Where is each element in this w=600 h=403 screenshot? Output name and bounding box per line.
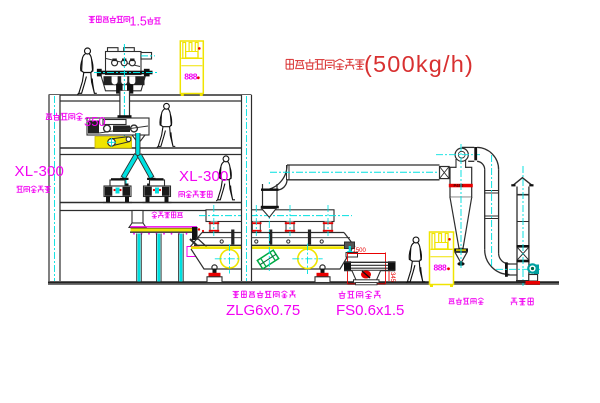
svg-text:1.5: 1.5	[130, 15, 147, 29]
svg-text:350: 350	[84, 114, 106, 129]
svg-text:1500: 1500	[353, 248, 367, 254]
svg-text:XL-300: XL-300	[15, 163, 65, 180]
svg-text:XL-300: XL-300	[179, 168, 229, 185]
svg-text:(500kg/h): (500kg/h)	[364, 51, 474, 77]
svg-text:888: 888	[434, 262, 447, 272]
svg-text:345: 345	[389, 272, 395, 283]
svg-text:P450: P450	[454, 183, 464, 188]
svg-text:ZLG6x0.75: ZLG6x0.75	[226, 302, 300, 319]
svg-text:888: 888	[184, 71, 197, 81]
svg-text:FS0.6x1.5: FS0.6x1.5	[336, 302, 404, 319]
